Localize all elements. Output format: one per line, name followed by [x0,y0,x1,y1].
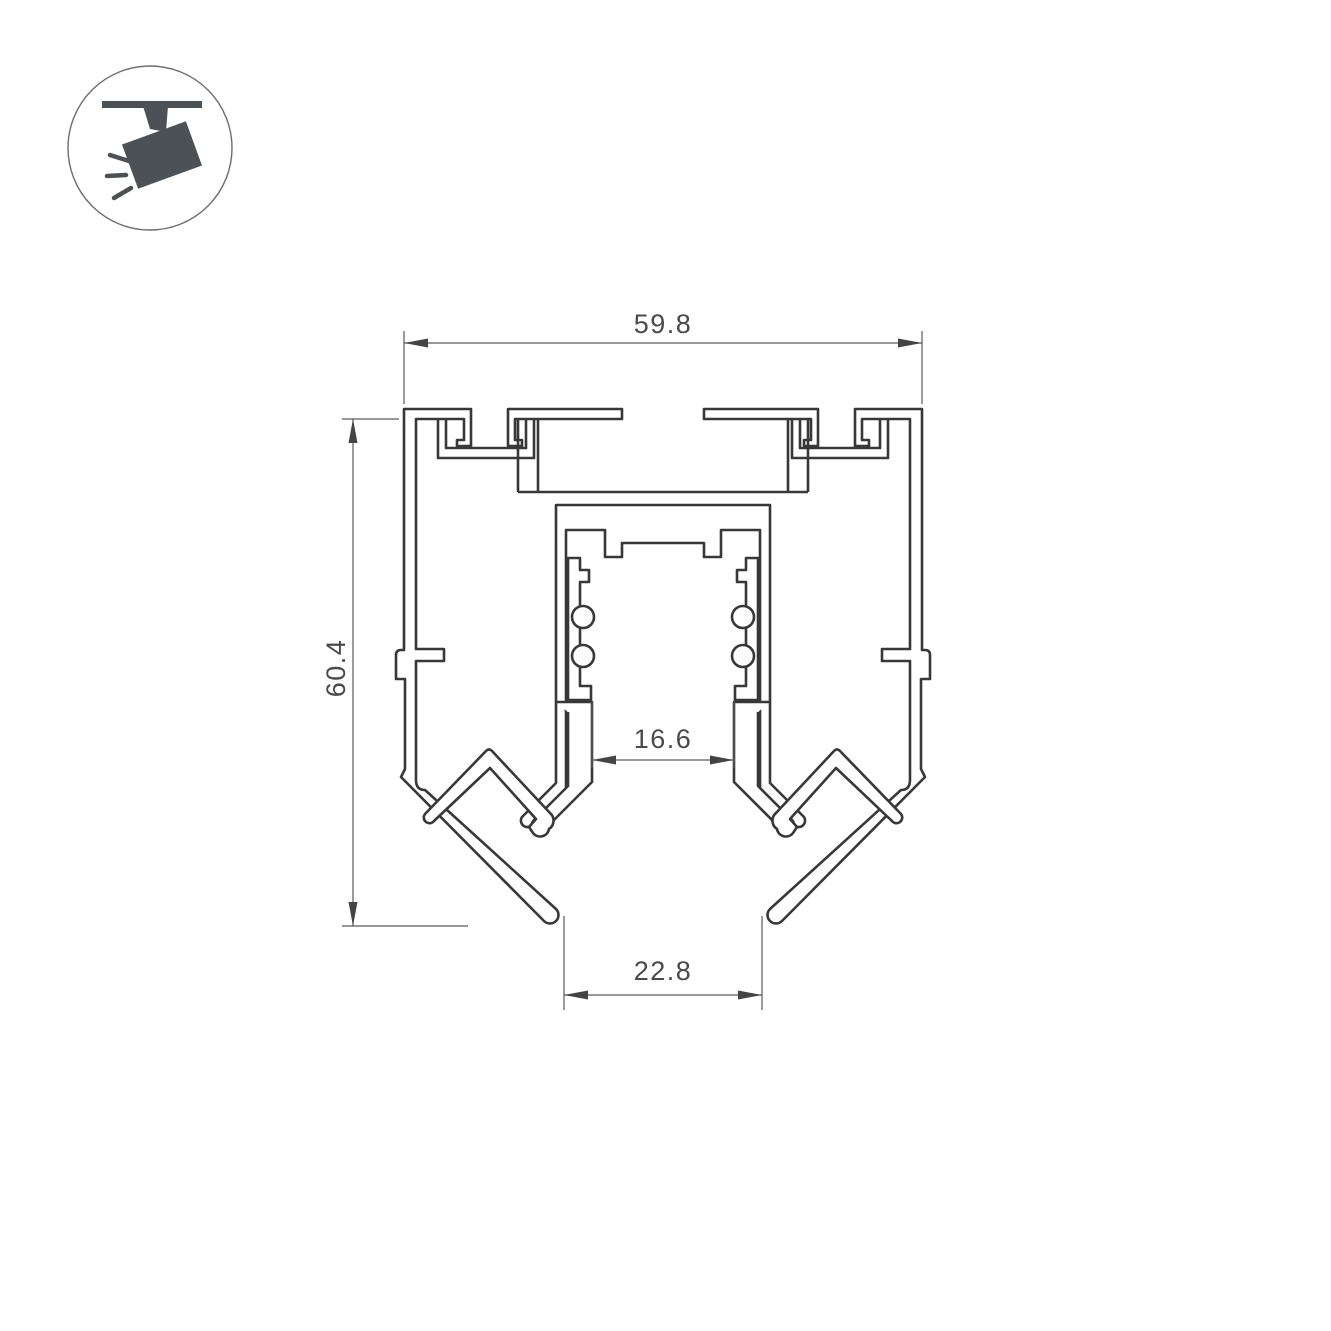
dimension-value-track-opening: 16.6 [634,724,693,754]
extension-lines-width [404,331,922,404]
dimension-value-height: 60.4 [321,639,351,698]
light-rays-icon [107,155,131,198]
dimension-value-width: 59.8 [634,309,693,339]
spot-body-icon [122,121,202,188]
dimension-value-bottom-opening: 22.8 [634,956,693,986]
arrowhead-left [564,991,588,1000]
arrowhead-right [710,756,734,765]
technical-drawing: 59.8 60.4 16.6 22.8 [0,0,1331,1331]
wing-outer-wall-and-flange [396,409,558,923]
dimension-overall-height: 60.4 [321,419,468,926]
arrowhead-right [898,339,922,348]
dimension-bottom-opening: 22.8 [564,916,762,1010]
arrowhead-left [592,756,616,765]
spring-clip-strip [424,750,554,837]
drawing-canvas: 59.8 60.4 16.6 22.8 [0,0,1331,1331]
track-light-icon [68,66,232,230]
dimension-overall-width: 59.8 [404,309,922,404]
arrowhead-left [404,339,428,348]
spot-stem-icon [143,106,168,132]
conductor-wire-lower [572,645,594,667]
arrowhead-right [738,991,762,1000]
profile-left-half [396,409,663,923]
arrowhead-bottom [349,902,358,926]
screw-slot-channel [438,419,534,458]
profile-right-half [663,409,930,923]
hanger-stem-and-bridge [518,419,663,492]
insulator-strip [568,558,591,700]
dimension-track-opening: 16.6 [592,702,734,768]
arrowhead-top [349,419,358,443]
conductor-wire-upper [572,606,594,628]
